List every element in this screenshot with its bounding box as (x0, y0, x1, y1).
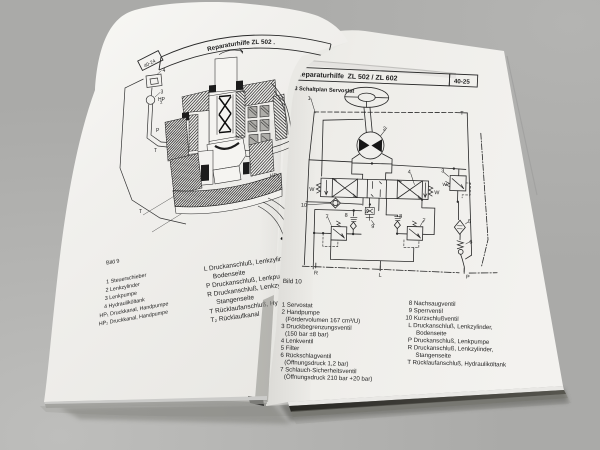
svg-text:P: P (466, 274, 470, 280)
svg-text:7: 7 (422, 218, 425, 224)
svg-text:3: 3 (441, 168, 444, 174)
svg-text:40-25: 40-25 (454, 78, 471, 86)
svg-text:7: 7 (325, 214, 328, 220)
svg-text:6: 6 (469, 240, 472, 246)
svg-text:1: 1 (308, 96, 311, 102)
svg-text:5: 5 (468, 219, 471, 225)
svg-text:8: 8 (345, 213, 348, 219)
svg-text:R: R (314, 270, 318, 276)
svg-text:L: L (378, 273, 381, 279)
svg-text:3: 3 (161, 90, 164, 96)
svg-text:W: W (442, 182, 447, 187)
svg-text:8: 8 (399, 214, 402, 220)
svg-text:Bild 10: Bild 10 (283, 278, 303, 286)
svg-text:9: 9 (371, 224, 374, 230)
svg-text:T: T (139, 209, 142, 215)
svg-text:T: T (154, 148, 157, 154)
svg-text:4: 4 (163, 68, 166, 74)
svg-text:4: 4 (408, 169, 411, 175)
svg-text:10: 10 (301, 203, 307, 209)
svg-text:2: 2 (383, 126, 386, 132)
